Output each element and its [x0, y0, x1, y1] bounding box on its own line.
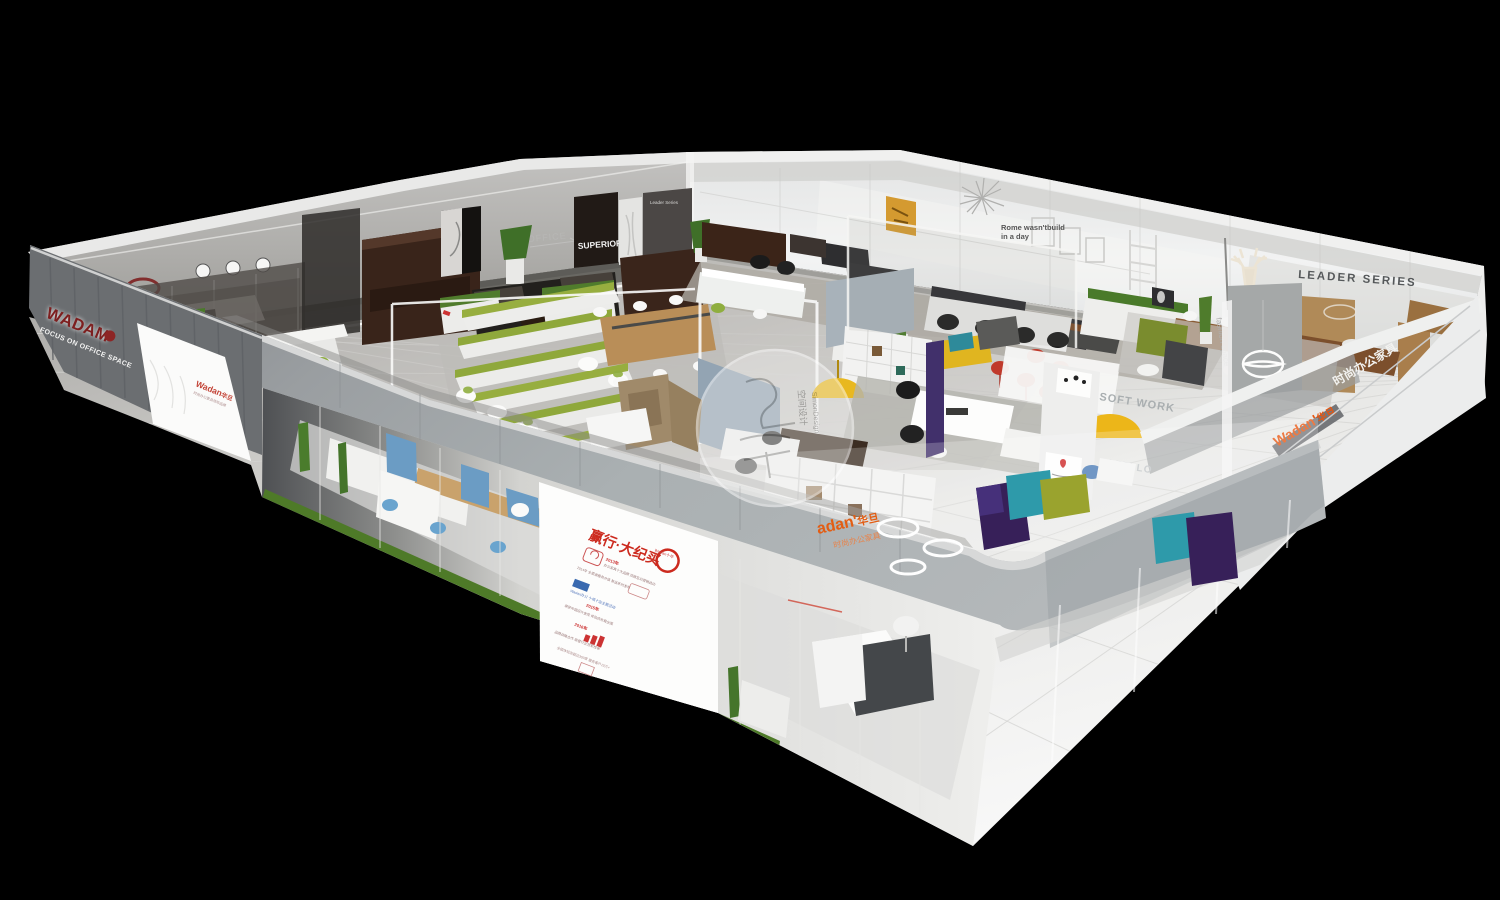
svg-text:Leader Series: Leader Series: [650, 200, 679, 205]
svg-text:Rome wasn'tbuild: Rome wasn'tbuild: [1001, 223, 1065, 232]
